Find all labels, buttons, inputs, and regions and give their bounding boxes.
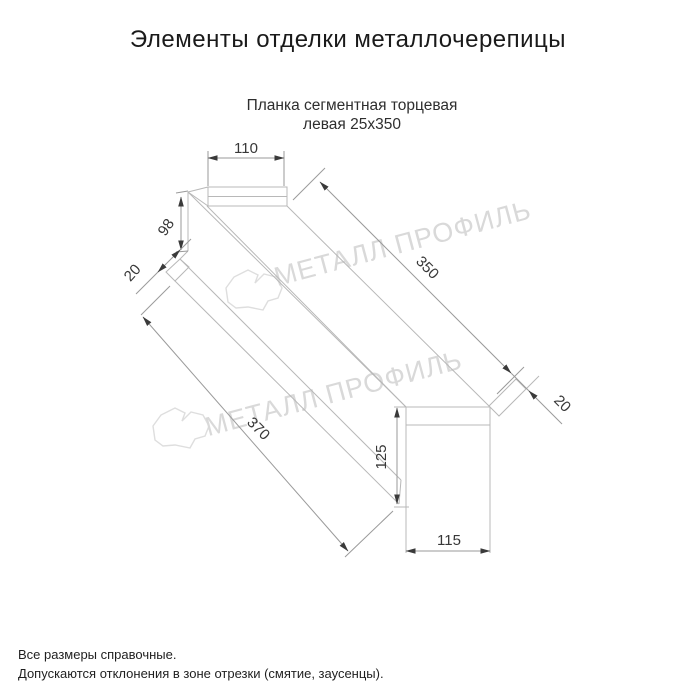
dim-98-label: 98: [155, 216, 178, 239]
dim-20-left-label: 20: [121, 261, 145, 285]
watermark-upper: МЕТАЛЛ ПРОФИЛЬ: [226, 195, 534, 310]
page-title: Элементы отделки металлочерепицы: [130, 26, 566, 53]
watermark-text-lower: МЕТАЛЛ ПРОФИЛЬ: [202, 345, 466, 443]
drawing-subtitle-line1: Планка сегментная торцевая: [247, 97, 458, 114]
watermark-lower: МЕТАЛЛ ПРОФИЛЬ: [153, 345, 465, 448]
dim-115-label: 115: [437, 532, 461, 549]
drawing-subtitle-line2: левая 25х350: [303, 116, 401, 133]
technical-drawing-svg: МЕТАЛЛ ПРОФИЛЬ МЕТАЛЛ ПРОФИЛЬ: [0, 0, 700, 700]
dimension-115: 115: [406, 532, 490, 551]
note-line-2: Допускаются отклонения в зоне отрезки (с…: [18, 666, 384, 681]
cloud-logo-icon: [153, 408, 209, 448]
dimension-20-right: 20: [511, 373, 574, 424]
note-line-1: Все размеры справочные.: [18, 647, 176, 662]
dim-125-label: 125: [373, 444, 390, 469]
watermark-text-upper: МЕТАЛЛ ПРОФИЛЬ: [271, 195, 535, 293]
dim-110-label: 110: [234, 140, 258, 157]
dimension-98: 98: [155, 191, 188, 252]
dimension-110: 110: [208, 140, 284, 186]
drawing-page: МЕТАЛЛ ПРОФИЛЬ МЕТАЛЛ ПРОФИЛЬ: [0, 0, 700, 700]
dim-20-right-label: 20: [550, 392, 574, 416]
